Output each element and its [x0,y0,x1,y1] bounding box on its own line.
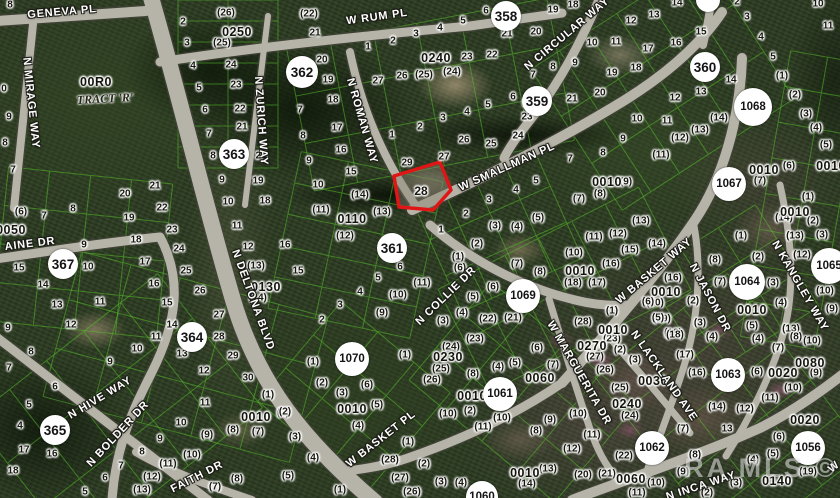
road [160,13,562,62]
road [562,58,742,383]
road-casing [338,383,562,472]
road-casing [562,58,742,383]
lot-line-grid [531,0,794,210]
road-casing [430,225,626,305]
road [0,237,160,259]
lot-line-grid [0,274,262,498]
road [14,24,33,208]
map-overlay [0,0,840,498]
road [703,0,712,45]
road [430,225,626,305]
road [0,11,146,21]
plat-aerial-map[interactable]: 82(26)3(25)4245236227218200987(6)7891015… [0,0,840,498]
mls-watermark: RA MLS © [684,453,838,484]
lot-line-grid [43,252,328,463]
road [338,383,562,472]
